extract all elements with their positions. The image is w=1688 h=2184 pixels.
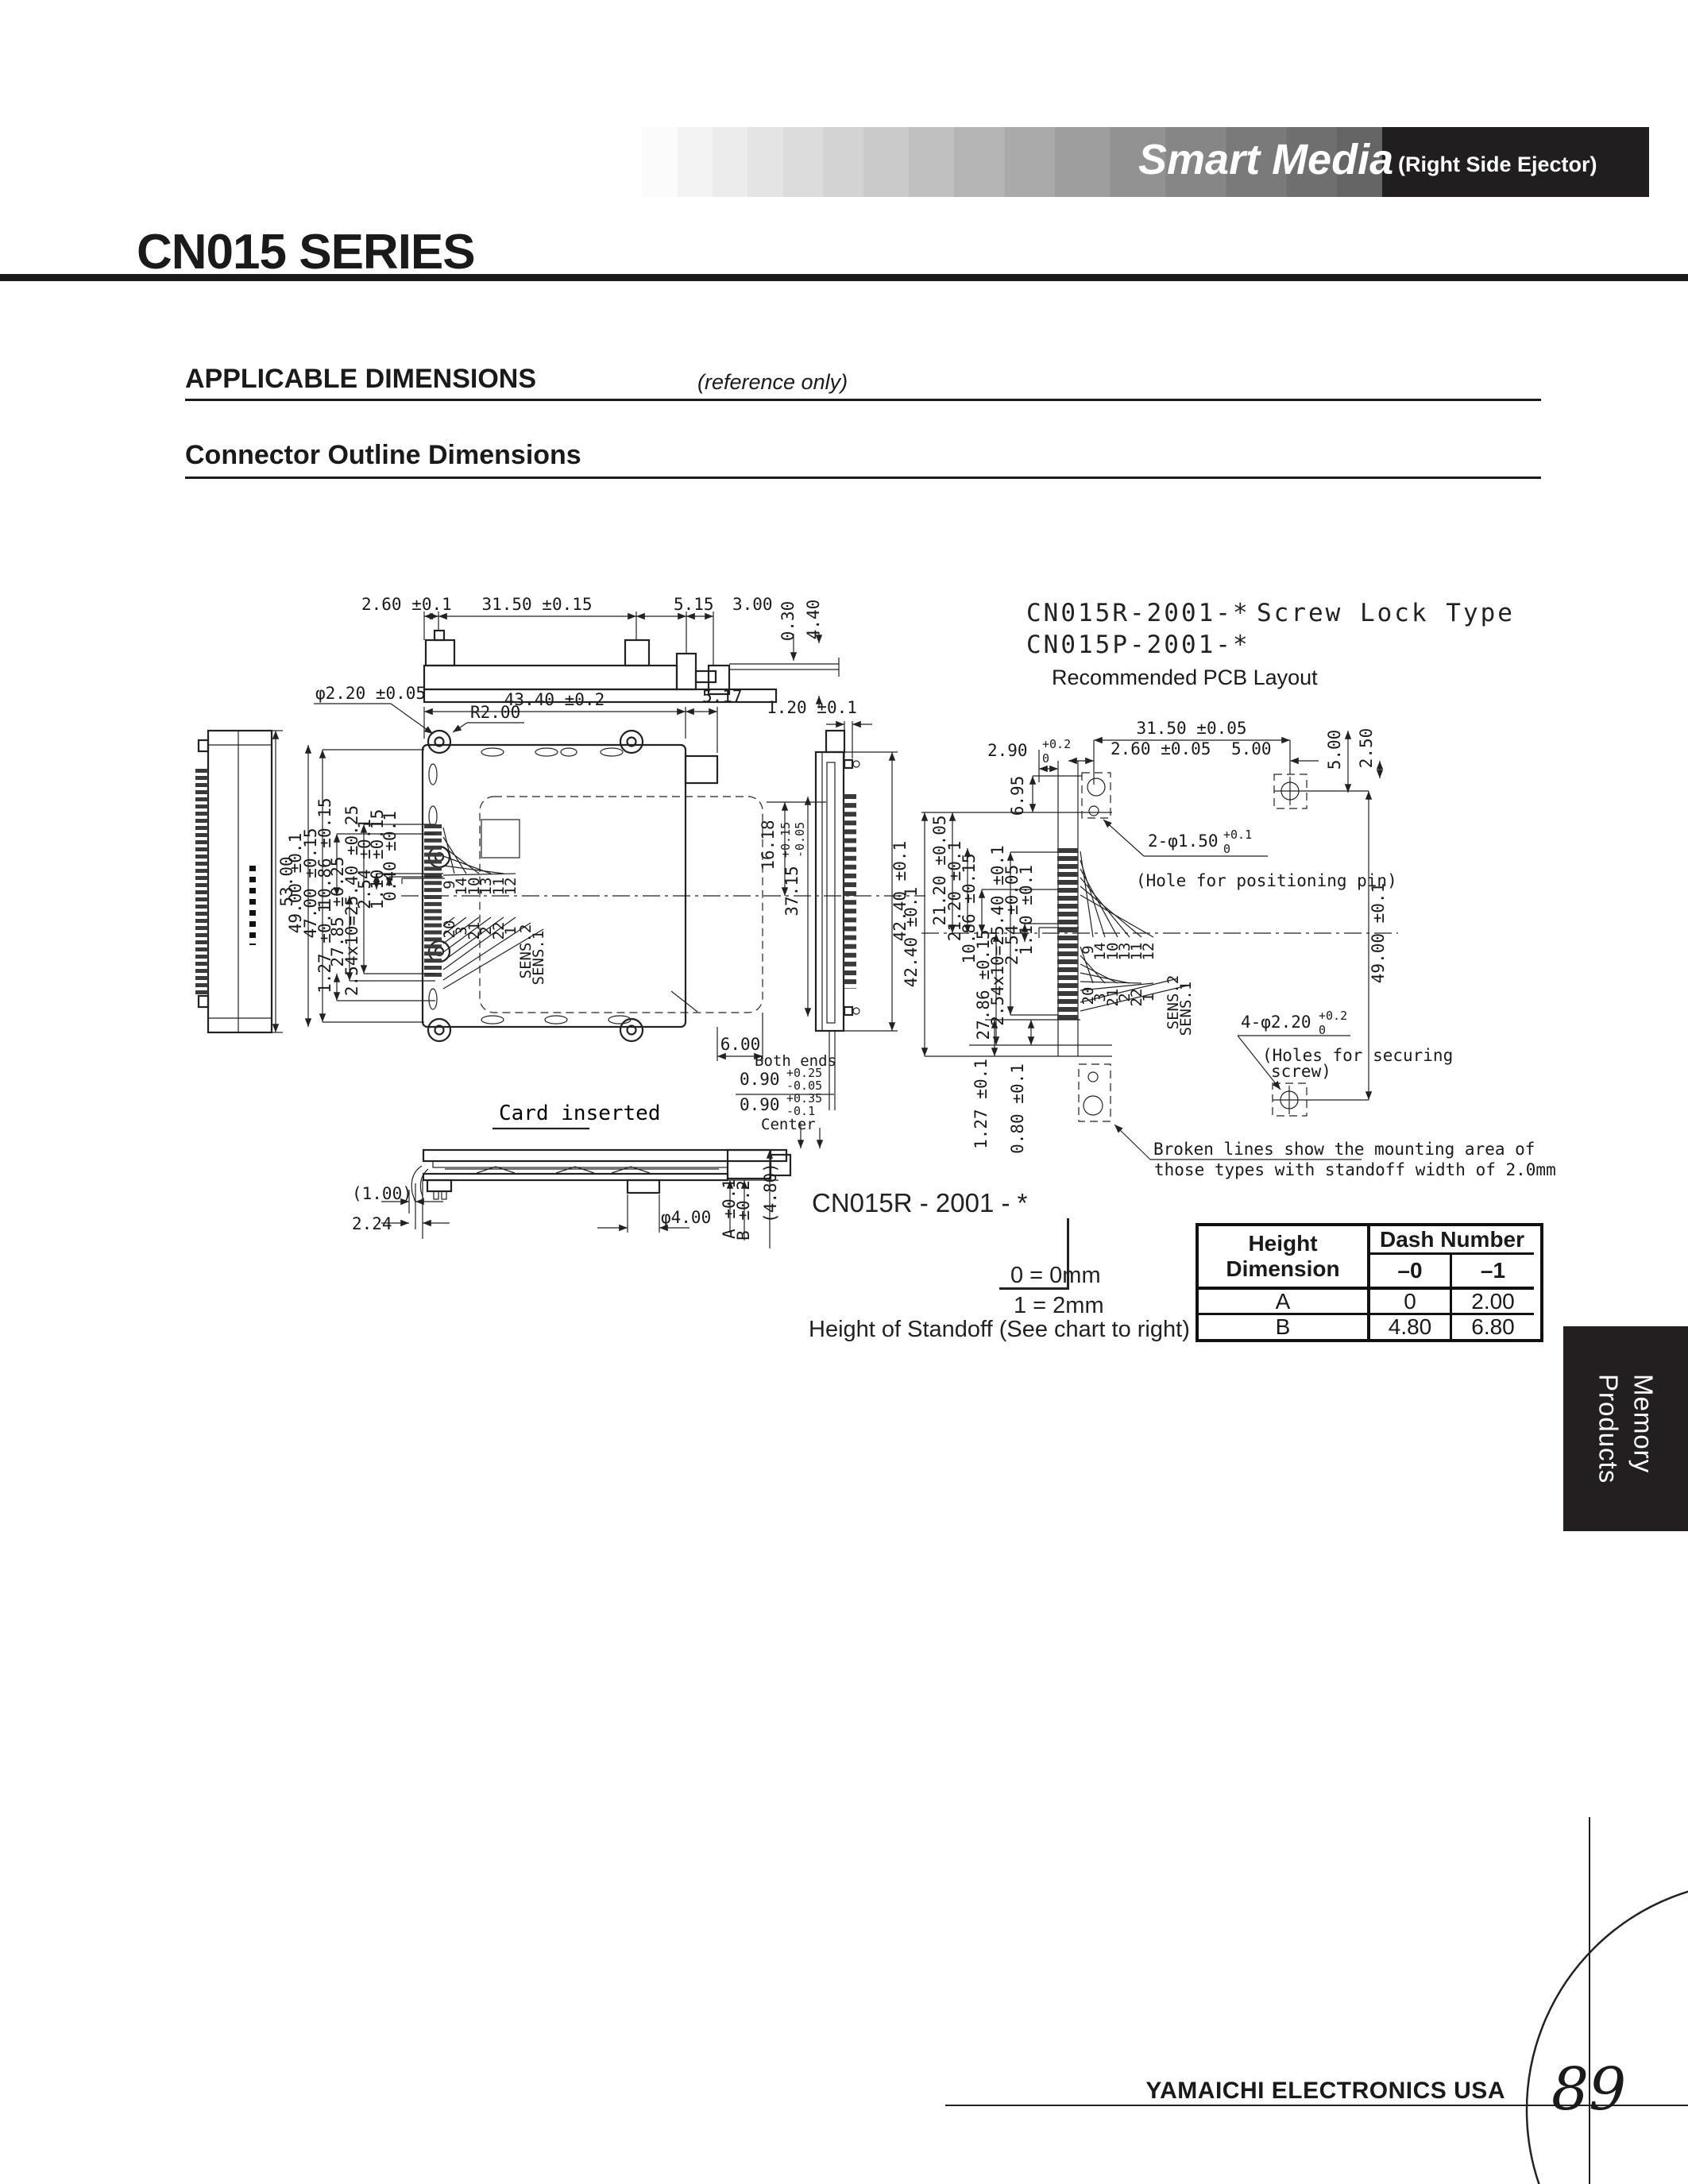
pcb-dim-290: 2.90 xyxy=(987,741,1028,760)
height-dash-table: Height Dimension Dash Number –0 –1 A 0 2… xyxy=(1196,1223,1543,1342)
pcb-screw-bot: 0 xyxy=(1319,1023,1326,1037)
pcb-dim-290-bot: 0 xyxy=(1042,751,1049,766)
table-cell-b1: 6.80 xyxy=(1452,1313,1534,1339)
center-label: Center xyxy=(761,1116,816,1133)
dim-260: 2.60 ±0.1 xyxy=(361,595,452,614)
pcb-dim-260: 2.60 ±0.05 xyxy=(1111,739,1211,758)
dim-127: 1.27 ±0.1 xyxy=(315,903,334,994)
dim-phi220: φ2.20 ±0.05 xyxy=(315,684,426,703)
pcb-layout: CN015R-2001-* Screw Lock Type CN015P-200… xyxy=(902,599,1556,1179)
memory-products-tab: Memory Products xyxy=(1563,1326,1688,1531)
card-inserted-view: Card inserted xyxy=(352,1102,790,1248)
legend-option-0: 0 = 0mm xyxy=(1010,1263,1101,1289)
table-cell-b0: 4.80 xyxy=(1370,1313,1452,1339)
pcb-screw-top: +0.2 xyxy=(1319,1009,1347,1023)
pcb-note-1: Broken lines show the mounting area of xyxy=(1153,1140,1535,1159)
tab-line-2: Products xyxy=(1591,1374,1626,1484)
table-header-dash: Dash Number xyxy=(1370,1226,1534,1255)
footer-company: YAMAICHI ELECTRONICS USA xyxy=(995,2078,1505,2105)
pcb-dim-695: 6.95 xyxy=(1008,776,1027,816)
pcb-hole-dim: 2-φ1.50 xyxy=(1148,832,1219,851)
dim-1618: 16.18 xyxy=(759,820,778,870)
dim-300: 3.00 xyxy=(732,595,773,614)
dim-4340: 43.40 ±0.2 xyxy=(504,690,605,709)
table-cell-a1: 2.00 xyxy=(1452,1287,1534,1313)
pcb-pin-label: 12 xyxy=(1140,943,1157,961)
legend-option-1: 1 = 2mm xyxy=(1014,1293,1104,1319)
dim-090a: 0.90 xyxy=(740,1070,780,1089)
dim-100: (1.00) xyxy=(352,1184,412,1203)
pcb-screw-caption-2: screw) xyxy=(1271,1062,1331,1081)
table-header-dash1: –1 xyxy=(1452,1255,1534,1287)
right-side-view: 16.18 37.15 +0.15 -0.05 42.40 ±0.1 6.00 … xyxy=(717,721,910,1148)
sens-label: SENS.1 xyxy=(530,931,547,986)
dim-600: 6.00 xyxy=(720,1035,761,1054)
pcb-hole-caption: (Hole for positioning pin) xyxy=(1136,871,1397,890)
technical-drawing: 2.60 ±0.1 31.50 ±0.15 5.15 3.00 0.30 4.4… xyxy=(0,0,1688,2184)
legend-part-number: CN015R - 2001 - * xyxy=(812,1188,1027,1218)
type-label: Screw Lock Type xyxy=(1257,599,1515,627)
pcb-pin-label: 1 xyxy=(1140,993,1157,1001)
pcb-dim-3150: 31.50 ±0.05 xyxy=(1136,719,1246,738)
pin-label: 12 xyxy=(502,878,520,896)
pcb-dim-080: 0.80 ±0.1 xyxy=(1008,1063,1027,1154)
pcb-dim-4240: 42.40 ±0.1 xyxy=(902,887,921,987)
pcb-sens-label: SENS.1 xyxy=(1177,982,1195,1036)
dim-3715-tol-top: +0.15 xyxy=(778,822,793,858)
pcb-screw-dim: 4-φ2.20 xyxy=(1241,1013,1311,1032)
table-header-height-line1: Height xyxy=(1248,1231,1317,1256)
model-p: CN015P-2001-* xyxy=(1026,631,1250,659)
page-number: 89 xyxy=(1551,2055,1626,2124)
dim-440: 4.40 xyxy=(804,600,823,640)
pcb-caption: Recommended PCB Layout xyxy=(1052,666,1318,689)
pcb-dim-250: 2.50 xyxy=(1357,728,1376,769)
dim-090b: 0.90 xyxy=(740,1095,780,1114)
pcb-hole-top: +0.1 xyxy=(1223,828,1252,842)
dim-515: 5.15 xyxy=(674,595,714,614)
pcb-dim-127: 1.27 ±0.1 xyxy=(971,1059,991,1149)
dim-3150: 31.50 ±0.15 xyxy=(481,595,592,614)
dim-480: (4.80) xyxy=(761,1163,780,1223)
table-header-height: Height Dimension xyxy=(1199,1226,1370,1287)
pcb-hole-bot: 0 xyxy=(1223,842,1230,856)
left-side-view: 53.00 xyxy=(199,731,296,1032)
dim-224: 2.24 xyxy=(352,1214,392,1233)
dim-040: 0.40 ±0.1 xyxy=(380,811,400,901)
dim-3715-tol-bot: -0.05 xyxy=(793,822,807,858)
pcb-dim-500h: 5.00 xyxy=(1231,739,1272,758)
table-cell-dim-b: B xyxy=(1199,1313,1370,1339)
dim-b: B ±0.2 xyxy=(734,1180,753,1241)
pcb-dim-290-top: +0.2 xyxy=(1042,737,1071,751)
table-cell-a0: 0 xyxy=(1370,1287,1452,1313)
table-header-height-line2: Dimension xyxy=(1226,1256,1339,1282)
tab-line-1: Memory xyxy=(1626,1374,1661,1484)
pcb-dim-110: 1.10 ±0.1 xyxy=(1017,865,1036,955)
pcb-fan-top xyxy=(1080,851,1153,937)
card-view-title: Card inserted xyxy=(499,1102,661,1125)
legend-note: Height of Standoff (See chart to right) xyxy=(809,1317,1190,1343)
table-cell-dim-a: A xyxy=(1199,1287,1370,1313)
dim-phi400: φ4.00 xyxy=(661,1208,711,1227)
footer-arc xyxy=(1527,1881,1688,2184)
model-r: CN015R-2001-* xyxy=(1026,599,1250,627)
dim-120: 1.20 ±0.1 xyxy=(767,698,857,717)
pcb-note-2: those types with standoff width of 2.0mm xyxy=(1154,1160,1556,1179)
footer-graphics xyxy=(945,1817,1688,2184)
dim-517: 5.17 xyxy=(702,687,743,706)
dim-030: 0.30 xyxy=(778,601,798,642)
dim-3715: 37.15 xyxy=(782,866,802,916)
pcb-dim-500v: 5.00 xyxy=(1325,730,1344,770)
pcb-dim-4900: 49.00 ±0.1 xyxy=(1369,883,1388,983)
table-header-dash0: –0 xyxy=(1370,1255,1452,1287)
main-plan-view: 9 14 10 13 11 12 20 3 21 2 22 1 SENS.2 S… xyxy=(286,684,925,1041)
datasheet-page: Smart Media (Right Side Ejector) CN015 S… xyxy=(0,0,1688,2184)
